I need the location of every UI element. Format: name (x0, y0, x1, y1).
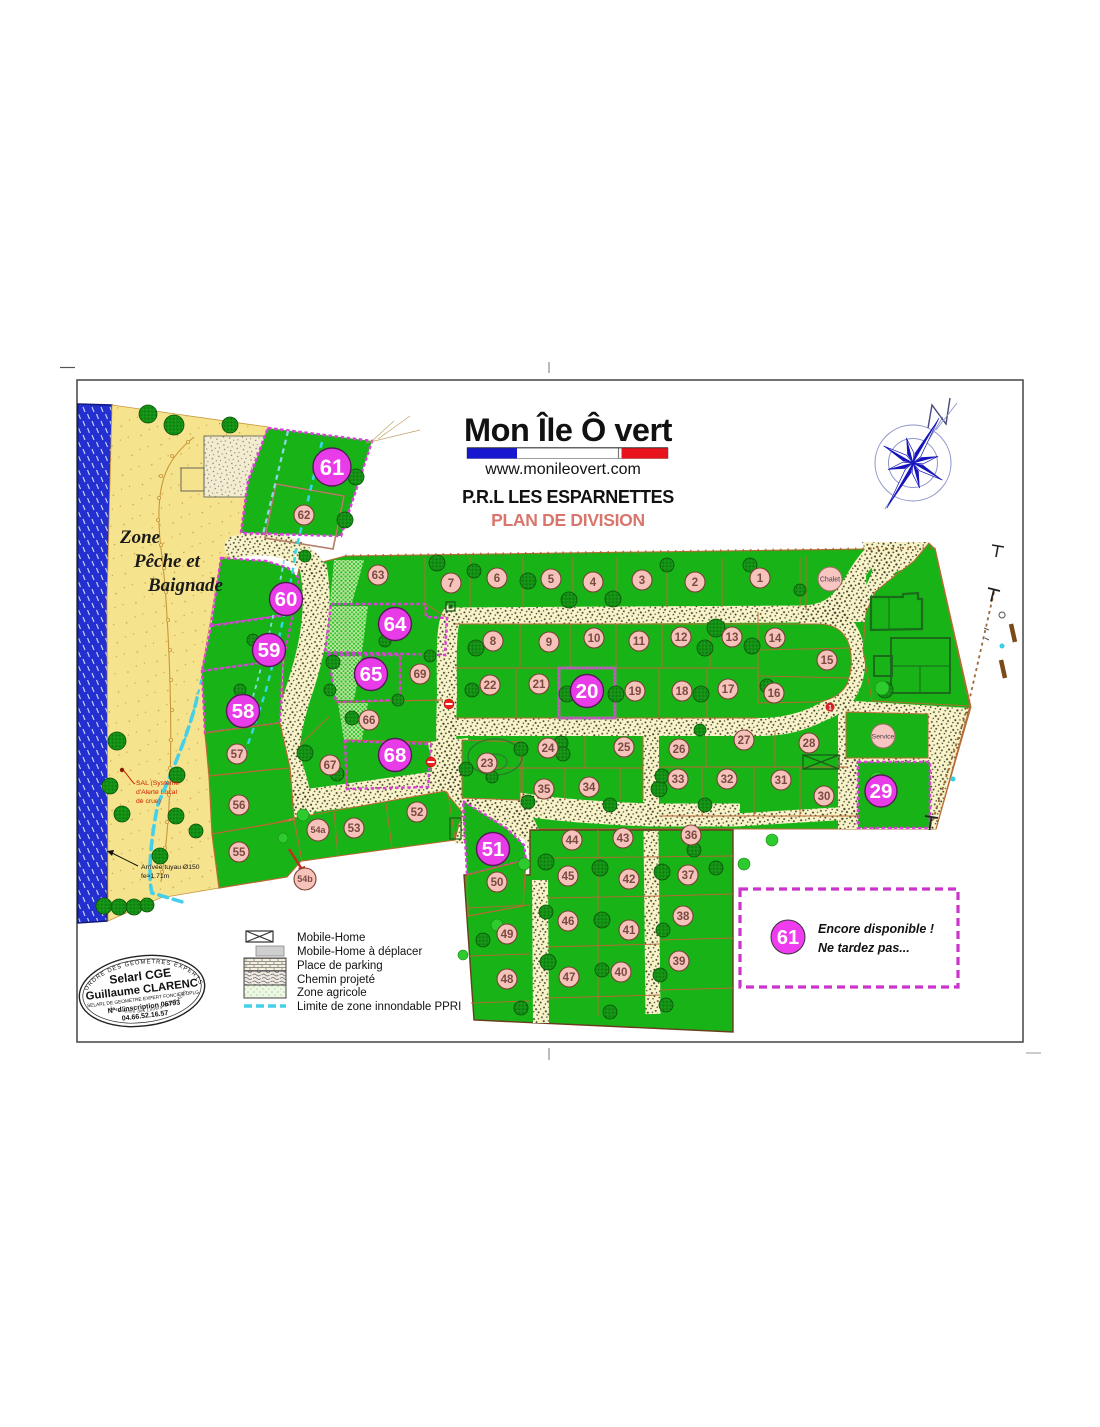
svg-text:14: 14 (769, 633, 782, 645)
svg-text:12: 12 (675, 632, 688, 644)
svg-text:61: 61 (777, 927, 799, 949)
svg-text:36: 36 (685, 830, 698, 842)
svg-text:59: 59 (258, 639, 281, 662)
svg-text:Chemin projeté: Chemin projeté (297, 974, 375, 986)
svg-text:60: 60 (275, 588, 298, 611)
svg-text:Ne tardez pas...: Ne tardez pas... (818, 941, 910, 955)
svg-text:Limite de zone innondable PPRI: Limite de zone innondable PPRI (297, 1001, 461, 1013)
svg-text:21: 21 (533, 679, 546, 691)
svg-text:45: 45 (562, 871, 575, 883)
svg-text:69: 69 (414, 669, 427, 681)
svg-text:44: 44 (566, 835, 579, 847)
svg-text:25: 25 (618, 742, 631, 754)
svg-text:9: 9 (546, 637, 552, 649)
svg-text:33: 33 (672, 774, 685, 786)
svg-text:PLAN DE DIVISION: PLAN DE DIVISION (491, 510, 645, 530)
svg-text:Mobile-Home à déplacer: Mobile-Home à déplacer (297, 946, 422, 958)
svg-text:67: 67 (324, 760, 337, 772)
svg-text:62: 62 (298, 510, 311, 522)
svg-text:50: 50 (491, 877, 504, 889)
svg-text:47: 47 (563, 972, 576, 984)
svg-text:40: 40 (615, 967, 628, 979)
svg-text:30: 30 (818, 791, 831, 803)
svg-text:4: 4 (590, 577, 597, 589)
svg-text:20: 20 (576, 680, 599, 703)
svg-text:38: 38 (677, 911, 690, 923)
svg-text:Service: Service (872, 734, 895, 741)
svg-text:32: 32 (721, 774, 734, 786)
svg-text:35: 35 (538, 784, 551, 796)
svg-text:Pêche et: Pêche et (133, 551, 201, 572)
svg-text:22: 22 (484, 680, 497, 692)
svg-text:27: 27 (738, 735, 751, 747)
svg-text:Mobile-Home: Mobile-Home (297, 932, 365, 944)
svg-text:SAL (Système: SAL (Système (136, 780, 179, 787)
svg-text:fe≈1.71m: fe≈1.71m (141, 873, 170, 880)
svg-text:1: 1 (757, 573, 764, 585)
svg-text:56: 56 (233, 800, 246, 812)
svg-text:3: 3 (639, 575, 645, 587)
svg-text:24: 24 (542, 743, 555, 755)
svg-text:48: 48 (501, 974, 514, 986)
svg-text:53: 53 (348, 823, 361, 835)
svg-text:61: 61 (320, 455, 344, 480)
svg-text:5: 5 (548, 574, 555, 586)
svg-text:6: 6 (494, 573, 500, 585)
svg-text:49: 49 (501, 929, 514, 941)
svg-text:Chalet: Chalet (820, 577, 840, 584)
svg-text:10: 10 (588, 633, 601, 645)
svg-text:15: 15 (821, 655, 834, 667)
svg-text:68: 68 (384, 744, 407, 767)
svg-text:26: 26 (673, 744, 686, 756)
svg-text:58: 58 (232, 700, 255, 723)
svg-text:57: 57 (231, 749, 244, 761)
svg-text:2: 2 (692, 577, 698, 589)
svg-text:Mon Île Ô vert: Mon Île Ô vert (464, 410, 673, 448)
svg-text:P.R.L LES ESPARNETTES: P.R.L LES ESPARNETTES (462, 487, 674, 507)
svg-text:63: 63 (372, 570, 385, 582)
svg-text:23: 23 (481, 758, 494, 770)
svg-text:34: 34 (583, 782, 596, 794)
svg-text:28: 28 (803, 738, 816, 750)
svg-text:Place de parking: Place de parking (297, 960, 383, 972)
svg-text:Zone agricole: Zone agricole (297, 987, 367, 999)
svg-text:39: 39 (673, 956, 686, 968)
svg-text:de crue): de crue) (136, 798, 161, 805)
svg-text:55: 55 (233, 847, 246, 859)
svg-text:41: 41 (623, 925, 636, 937)
svg-text:7: 7 (448, 578, 454, 590)
svg-text:16: 16 (768, 688, 781, 700)
svg-text:8: 8 (490, 636, 497, 648)
svg-text:64: 64 (384, 613, 407, 636)
svg-text:d'Alerte Local: d'Alerte Local (136, 789, 177, 796)
svg-text:17: 17 (722, 684, 735, 696)
svg-text:54a: 54a (310, 825, 326, 835)
svg-text:46: 46 (562, 916, 575, 928)
svg-text:52: 52 (411, 807, 424, 819)
svg-text:13: 13 (726, 632, 739, 644)
svg-text:Baignade: Baignade (147, 575, 224, 596)
svg-text:42: 42 (623, 874, 636, 886)
svg-text:29: 29 (870, 780, 893, 803)
svg-text:11: 11 (633, 636, 646, 648)
svg-text:Zone: Zone (119, 527, 161, 548)
svg-text:66: 66 (363, 715, 376, 727)
svg-text:43: 43 (617, 833, 630, 845)
svg-text:19: 19 (629, 686, 642, 698)
svg-text:1: 1 (828, 705, 832, 712)
svg-text:65: 65 (360, 663, 383, 686)
svg-text:31: 31 (775, 775, 788, 787)
svg-text:37: 37 (682, 870, 695, 882)
svg-text:Encore disponible !: Encore disponible ! (818, 922, 934, 936)
svg-text:Arrivée tuyau Ø150: Arrivée tuyau Ø150 (141, 864, 200, 871)
svg-text:18: 18 (676, 686, 689, 698)
svg-text:54b: 54b (297, 874, 313, 884)
svg-text:www.monileovert.com: www.monileovert.com (484, 461, 641, 478)
svg-text:51: 51 (482, 838, 505, 861)
